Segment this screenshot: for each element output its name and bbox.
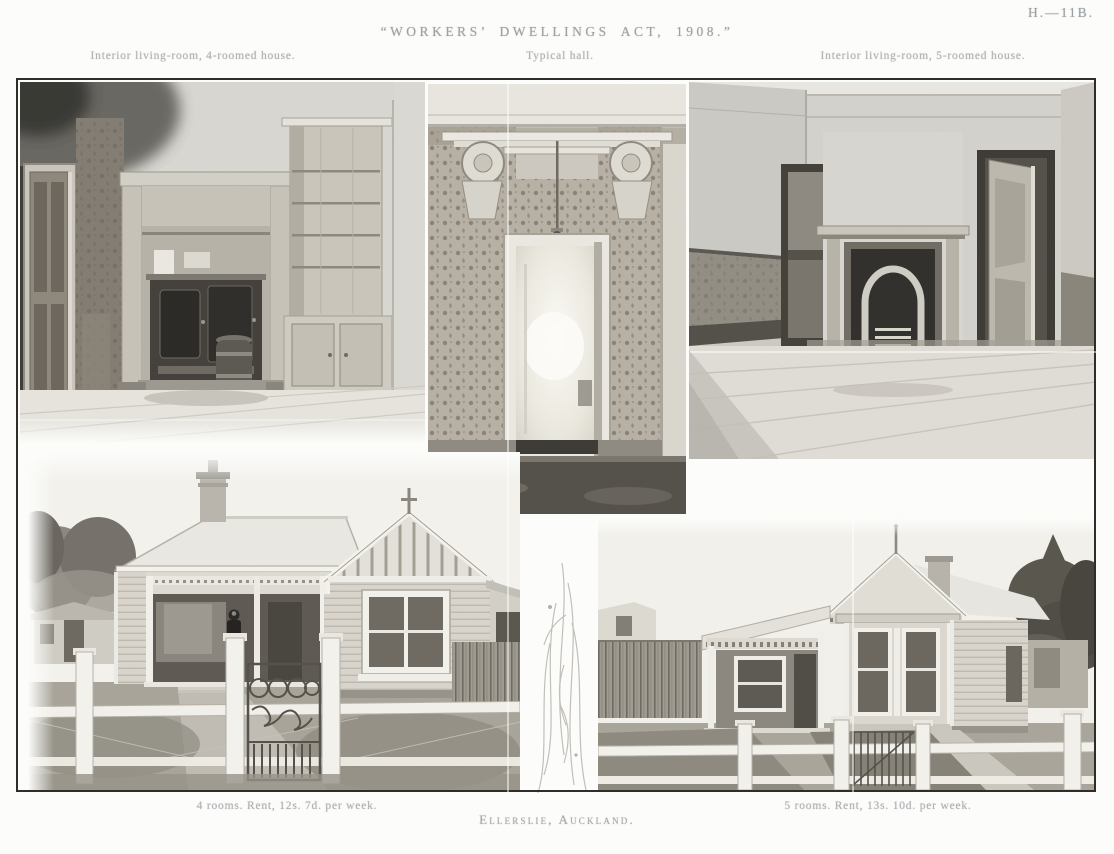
caption-location: Ellerslie, Auckland. [427, 812, 687, 828]
exterior-5-roomed-drawing [598, 518, 1095, 790]
interior-4-roomed-drawing [20, 82, 425, 444]
caption-typical-hall: Typical hall. [480, 50, 640, 62]
plant-sketch [520, 555, 606, 805]
exterior-4-roomed-drawing [28, 452, 520, 790]
plate-page: { "page": { "plate_number": "H.—11B.", "… [0, 0, 1114, 854]
photo-typical-hall [428, 84, 686, 514]
plate-number: H.—11B. [1028, 5, 1094, 21]
photo-exterior-4-roomed [28, 452, 520, 790]
photo-interior-4-roomed [20, 82, 425, 444]
caption-rent-4-rooms: 4 rooms. Rent, 12s. 7d. per week. [147, 800, 427, 812]
caption-interior-5-roomed: Interior living-room, 5-roomed house. [788, 50, 1058, 62]
photo-exterior-5-roomed [598, 518, 1095, 790]
plant-sketch-drawing [520, 555, 606, 800]
interior-5-roomed-drawing [689, 82, 1096, 459]
caption-rent-5-rooms: 5 rooms. Rent, 13s. 10d. per week. [738, 800, 1018, 812]
page-title: “WORKERS’ DWELLINGS ACT, 1908.” [0, 24, 1114, 40]
caption-interior-4-roomed: Interior living-room, 4-roomed house. [58, 50, 328, 62]
typical-hall-drawing [428, 84, 686, 514]
photo-interior-5-roomed [689, 82, 1096, 459]
